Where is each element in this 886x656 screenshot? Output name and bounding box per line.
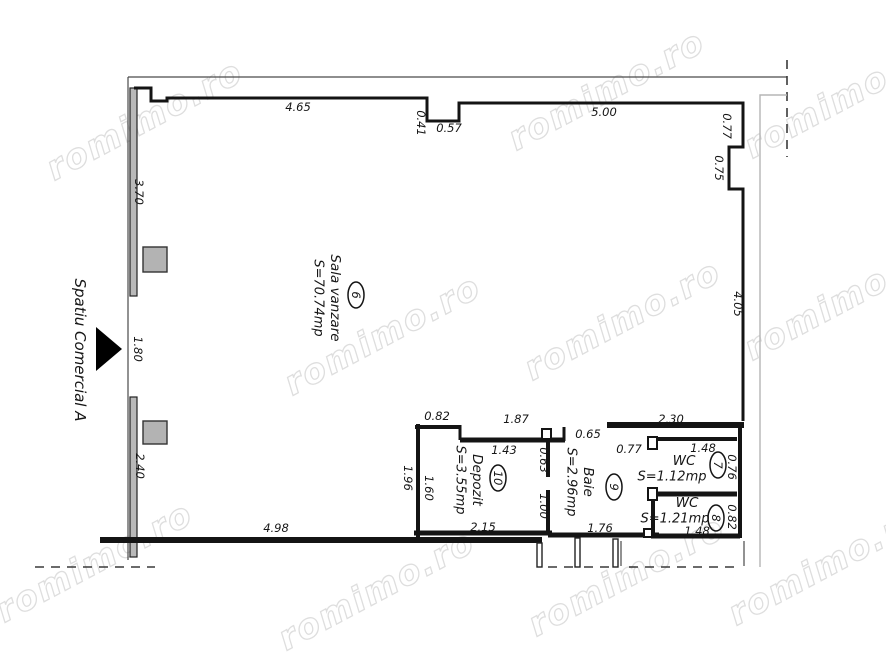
dimension-label: 1.43 bbox=[491, 443, 517, 457]
room-wc7: WC S=1.12mp 7 bbox=[637, 452, 726, 485]
exterior-space-label: Spatiu Comercial A bbox=[71, 278, 89, 421]
floor-plan-drawing: romimo.ro romimo.ro romimo.ro romimo.ro … bbox=[0, 0, 886, 656]
wall-outline-main bbox=[134, 88, 743, 421]
watermark-text: romimo.ro bbox=[0, 494, 200, 631]
watermark-text: romimo.ro bbox=[502, 22, 712, 159]
dimension-label: 1.80 bbox=[131, 336, 145, 362]
dimension-label: 0.77 bbox=[720, 113, 734, 139]
dimension-label: 1.87 bbox=[503, 412, 529, 426]
watermark-text: romimo.ro bbox=[722, 497, 886, 634]
dimension-label: 1.48 bbox=[684, 524, 710, 538]
dimension-label: 4.98 bbox=[263, 521, 289, 535]
watermark-text: romimo.ro bbox=[518, 252, 728, 389]
dimension-label: 0.77 bbox=[616, 442, 642, 456]
room-area: S=1.12mp bbox=[637, 470, 706, 485]
dimension-label: 3.70 bbox=[132, 179, 146, 205]
dimension-label: 0.76 bbox=[725, 454, 739, 480]
facade-windows bbox=[130, 88, 137, 557]
dimension-label: 2.40 bbox=[133, 453, 147, 479]
dimension-label: 1.00 bbox=[537, 493, 551, 519]
wall-stub bbox=[613, 539, 618, 567]
entrance-arrow-icon bbox=[96, 327, 122, 371]
dimension-label: 0.82 bbox=[424, 409, 450, 423]
room-area: S=3.55mp bbox=[453, 445, 468, 514]
room-number: 7 bbox=[711, 461, 725, 469]
dimension-label: 0.63 bbox=[537, 447, 551, 473]
room-number: 8 bbox=[709, 514, 723, 521]
dimension-label: 1.76 bbox=[587, 521, 613, 535]
room-name: Depozit bbox=[469, 454, 485, 506]
dimension-label: 0.82 bbox=[725, 504, 739, 530]
dimension-label: 2.15 bbox=[470, 520, 496, 534]
electrical-box bbox=[143, 247, 167, 272]
room-number: 6 bbox=[349, 291, 363, 298]
watermark-text: romimo.ro bbox=[278, 267, 488, 404]
electrical-box bbox=[143, 421, 167, 444]
room-name: WC bbox=[676, 495, 699, 511]
room-number: 9 bbox=[607, 483, 621, 490]
room-area: S=70.74mp bbox=[311, 259, 326, 336]
room-baie: Baie S=2.96mp 9 bbox=[564, 447, 623, 516]
door-hinge-wc8-bottom bbox=[644, 529, 652, 537]
room-number: 10 bbox=[491, 471, 505, 486]
door-hinge-depozit bbox=[542, 429, 551, 439]
dimension-label: 1.60 bbox=[422, 475, 436, 501]
floor-plan-canvas: romimo.ro romimo.ro romimo.ro romimo.ro … bbox=[0, 0, 886, 656]
room-name: Baie bbox=[580, 467, 596, 497]
dimension-label: 4.05 bbox=[731, 291, 745, 317]
room-area: S=2.96mp bbox=[564, 447, 579, 516]
wall-stub bbox=[537, 543, 542, 567]
watermark-text: romimo.ro bbox=[40, 52, 250, 189]
dimension-label: 2.30 bbox=[658, 412, 684, 426]
dimension-label: 0.41 bbox=[414, 110, 428, 136]
dimension-label: 0.75 bbox=[712, 155, 726, 181]
wall-stub bbox=[575, 538, 580, 567]
dimension-label: 5.00 bbox=[591, 105, 617, 119]
room-name: WC bbox=[673, 453, 696, 469]
dimension-label: 0.57 bbox=[436, 121, 462, 135]
dimension-label: 1.48 bbox=[690, 441, 716, 455]
dimension-label: 1.96 bbox=[401, 465, 415, 491]
dimension-label: 4.65 bbox=[285, 100, 311, 114]
room-name: Sala vanzare bbox=[327, 254, 343, 341]
dimension-label: 0.65 bbox=[575, 427, 601, 441]
door-hinge-wc8 bbox=[648, 488, 657, 500]
door-hinge-wc7 bbox=[648, 437, 657, 449]
